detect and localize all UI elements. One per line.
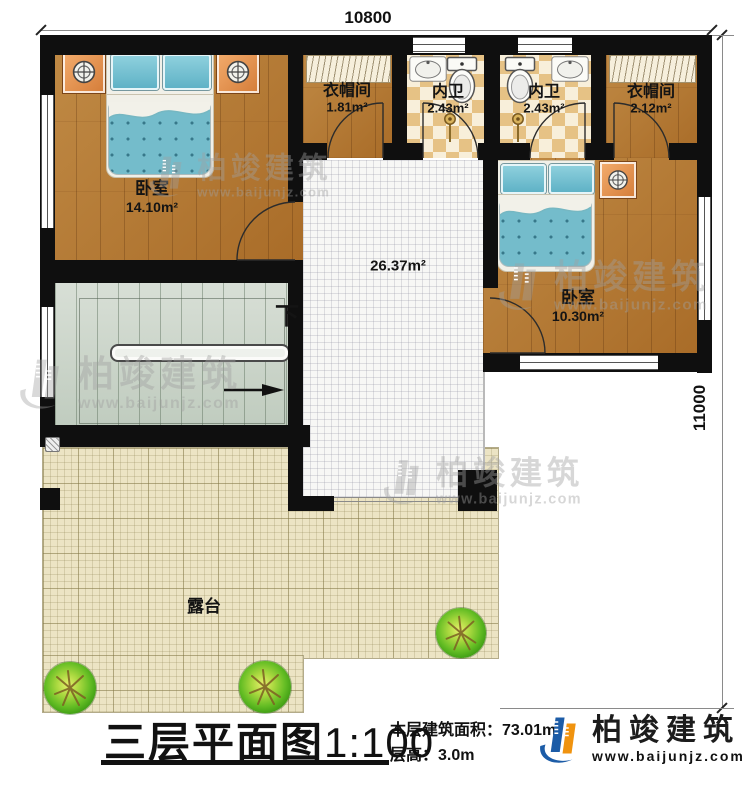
window-bath1-top [413,37,465,53]
room-name: 衣帽间 [627,83,675,101]
wall-bedroom1-bottom [40,260,303,283]
brand-icon [538,710,586,770]
dimension-ext-top [712,35,734,36]
room-area: 26.37m² [370,257,426,274]
window-bedroom1-left [41,95,54,228]
floor-height-value: 3.0m [438,747,474,764]
closet2-hanger-rack [609,55,696,83]
pillow [501,164,546,194]
wall-hall-left-stub [288,496,334,511]
room-area: 10.30m² [552,308,604,324]
floor-area-label: 本层建筑面积： [390,722,502,739]
pillow [163,54,211,90]
room-name: 衣帽间 [323,82,371,100]
stair-direction-arrow-icon [222,382,286,398]
wall-band-g [606,143,614,160]
room-area: 2.43m² [427,102,468,117]
floor-height-note: 层高：3.0m [390,744,562,769]
floor-drain [511,112,525,144]
terrace-corner-post [45,437,60,452]
hall-floor [303,160,483,497]
closet2-label: 衣帽间 2.12m² [627,83,675,116]
room-name: 内卫 [427,83,468,101]
room-name: 内卫 [523,83,564,101]
hall-right-edge [483,372,485,470]
company-logo: 柏竣建筑 www.baijunjz.com [538,710,745,770]
room-name: 卧室 [552,288,604,308]
stairs-direction-label: 下 [275,303,299,331]
wall-corner-block [458,470,497,511]
plan-notes: 本层建筑面积：73.01m² 层高：3.0m [390,719,562,769]
quilt-fold [500,200,591,224]
wall-band-h [669,143,697,160]
room-area: 1.81m² [323,101,371,116]
closet1-hanger-rack [306,55,391,83]
quilt-fold [109,102,210,128]
sink [409,56,447,82]
wall-stairs-bottom [40,425,310,447]
bed-double [497,160,595,272]
bedroom2-label: 卧室 10.30m² [552,288,604,324]
dimension-right-value: 11000 [690,385,710,431]
room-area: 14.10m² [126,199,178,215]
window-bedroom2-bottom [520,355,658,370]
wall-band-e [500,143,530,160]
direction-text: 下 [275,303,299,331]
room-name: 露台 [187,597,221,617]
window-bath2-top [518,37,572,53]
dimension-top-value: 10800 [344,8,391,28]
dimension-ext-bottom [500,708,734,709]
terrace-label: 露台 [187,597,221,617]
wall-closet1-bath1 [392,35,407,160]
lamp-icon [222,56,254,88]
terrace-door-threshold [334,497,458,503]
pillow [111,54,159,90]
staircase [55,282,288,425]
plant [436,608,486,658]
sink [551,56,589,82]
closet1-label: 衣帽间 1.81m² [323,82,371,115]
floor-height-label: 层高： [390,747,438,764]
wall-bedroom1-right [288,35,303,202]
logo-brand-name: 柏竣建筑 [592,716,745,746]
floor-drain [443,112,457,144]
room-area: 2.43m² [523,102,564,117]
pillow [549,164,594,194]
nightstand [599,161,637,199]
nightstand [216,50,260,94]
floor-area-note: 本层建筑面积：73.01m² [390,719,562,744]
room-name: 卧室 [126,179,178,199]
title-underline [101,760,389,765]
logo-brand-url: www.baijunjz.com [592,748,745,764]
terrace-column [40,488,60,510]
wall-band-f [585,143,591,160]
plant [239,661,291,713]
wall-band-c [407,143,423,160]
lamp-icon [604,166,632,194]
wall-band-a [303,143,327,160]
window-bedroom2-right [698,197,711,320]
wall-band-b [383,143,392,160]
window-stairs-left [41,307,54,397]
dimension-top-line [40,30,712,31]
hall-area-label: 26.37m² [370,257,426,274]
bed-double [106,48,214,178]
bedroom1-label: 卧室 14.10m² [126,179,178,215]
plant [44,662,96,714]
room-area: 2.12m² [627,102,675,117]
wall-bath2-closet2 [591,35,606,160]
nightstand [62,50,106,94]
stair-handrail [110,344,290,362]
bath1-label: 内卫 2.43m² [427,83,468,116]
wall-top [40,35,712,55]
wall-bath1-bath2 [484,35,500,160]
lamp-icon [68,56,100,88]
bath2-label: 内卫 2.43m² [523,83,564,116]
wall-bedroom2-left [483,158,498,288]
dimension-right-line [722,35,723,708]
floor-plan-page: 卧室 14.10m² 衣帽间 1.81m² 内卫 2.43m² 内卫 2.43m… [0,0,750,792]
